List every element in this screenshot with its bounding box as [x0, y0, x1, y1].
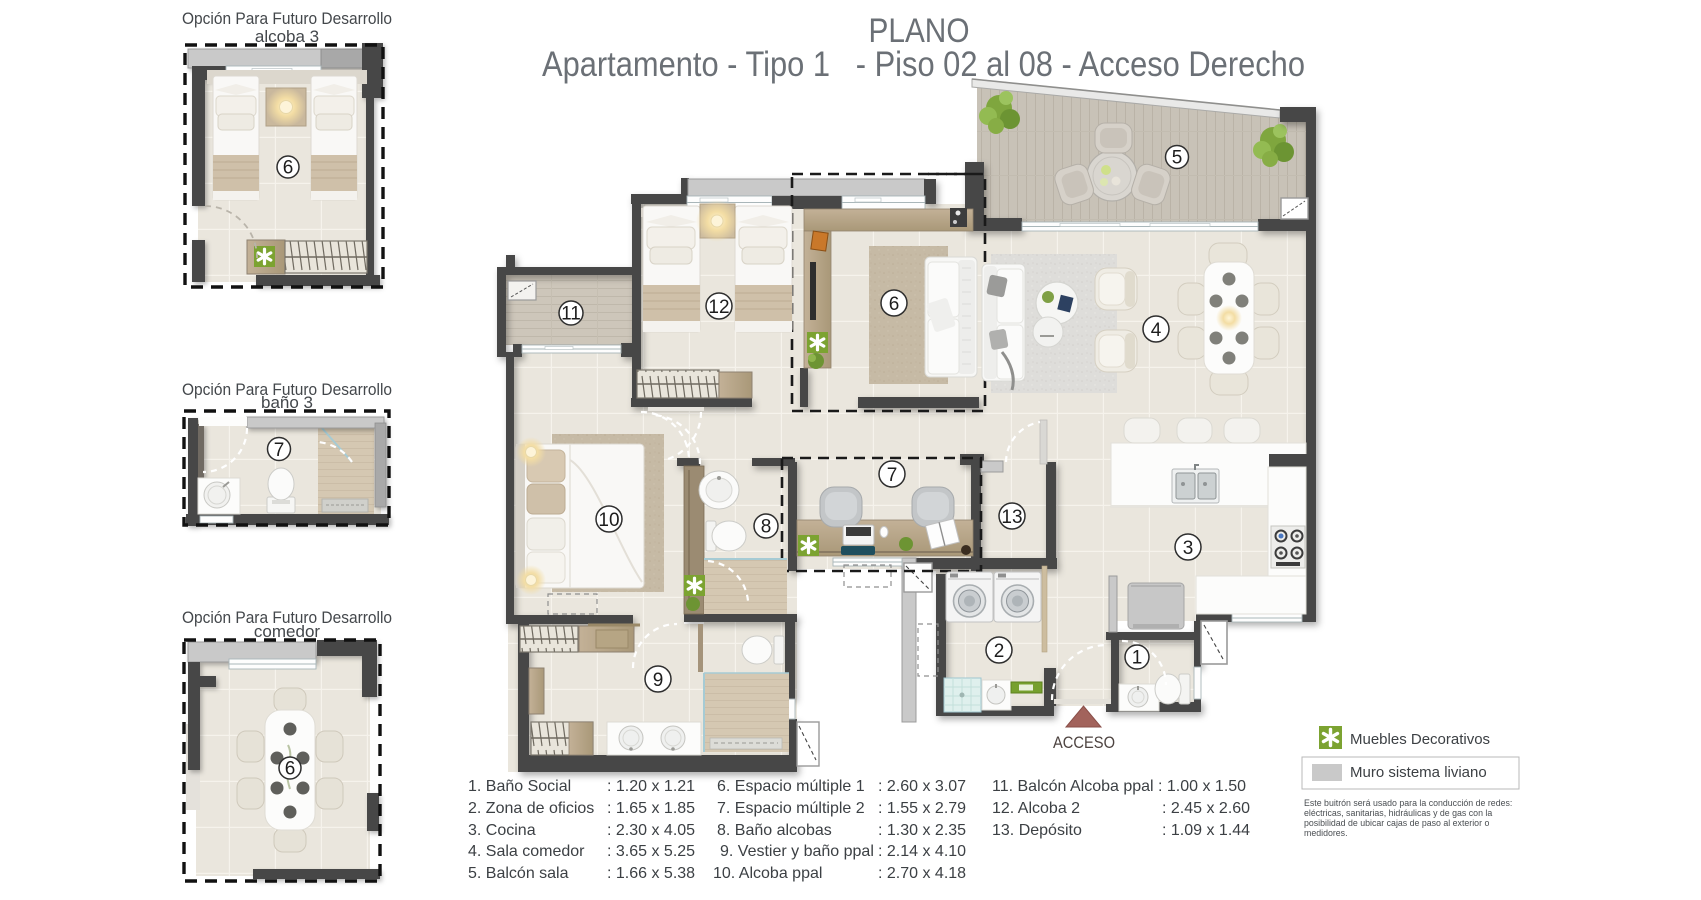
svg-text:: 1.00 x 1.50: : 1.00 x 1.50 [1158, 778, 1246, 795]
svg-text:8. Baño alcobas: 8. Baño alcobas [717, 822, 832, 839]
svg-text:1: 1 [1132, 648, 1143, 669]
svg-text:comedor: comedor [254, 622, 320, 641]
svg-text:: 1.30 x 2.35: : 1.30 x 2.35 [878, 822, 966, 839]
svg-text:9: 9 [653, 670, 664, 691]
svg-text:eléctricas, sanitarias, hidráu: eléctricas, sanitarias, hidráulicas y de… [1304, 808, 1492, 818]
svg-text:baño 3: baño 3 [261, 393, 313, 412]
svg-text:ACCESO: ACCESO [1053, 734, 1115, 752]
svg-text:9. Vestier y baño ppal: 9. Vestier y baño ppal [720, 843, 874, 860]
svg-text:1. Baño Social: 1. Baño Social [468, 778, 571, 795]
svg-text:: 2.30 x 4.05: : 2.30 x 4.05 [607, 822, 695, 839]
svg-text:3. Cocina: 3. Cocina [468, 822, 536, 839]
svg-text:: 1.09 x 1.44: : 1.09 x 1.44 [1162, 822, 1250, 839]
svg-text:: 2.14 x 4.10: : 2.14 x 4.10 [878, 843, 966, 860]
svg-text:posibilidad de ubicar cajas de: posibilidad de ubicar cajas de paso al e… [1304, 818, 1489, 828]
svg-text:12: 12 [708, 297, 729, 318]
svg-text:: 3.65 x 5.25: : 3.65 x 5.25 [607, 843, 695, 860]
svg-text:: 1.65 x 1.85: : 1.65 x 1.85 [607, 800, 695, 817]
svg-text:2: 2 [994, 641, 1005, 662]
svg-text:6. Espacio múltiple 1: 6. Espacio múltiple 1 [717, 778, 865, 795]
svg-text:8: 8 [761, 517, 772, 538]
svg-text:4: 4 [1151, 320, 1162, 341]
svg-text:13: 13 [1001, 507, 1022, 528]
svg-text:2. Zona de oficios: 2. Zona de oficios [468, 800, 594, 817]
svg-text:11. Balcón Alcoba ppal: 11. Balcón Alcoba ppal [992, 778, 1154, 795]
svg-text:: 2.45 x 2.60: : 2.45 x 2.60 [1162, 800, 1250, 817]
svg-text:: 1.20 x 1.21: : 1.20 x 1.21 [607, 778, 695, 795]
svg-text:Opción Para Futuro Desarrollo: Opción Para Futuro Desarrollo [182, 9, 392, 28]
svg-text:6: 6 [285, 759, 296, 780]
svg-text:Apartamento - Tipo 1 - Piso: Apartamento - Tipo 1 - Piso 02 al 08 - A… [542, 45, 1305, 84]
svg-text:5. Balcón sala: 5. Balcón sala [468, 865, 569, 882]
svg-text:7. Espacio múltiple 2: 7. Espacio múltiple 2 [717, 800, 865, 817]
svg-text:4. Sala comedor: 4. Sala comedor [468, 843, 585, 860]
svg-text:11: 11 [561, 304, 581, 325]
svg-text:alcoba 3: alcoba 3 [255, 27, 319, 46]
svg-text:12. Alcoba 2: 12. Alcoba 2 [992, 800, 1080, 817]
svg-text:6: 6 [283, 158, 294, 179]
svg-text:10. Alcoba ppal: 10. Alcoba ppal [713, 865, 822, 882]
svg-text:7: 7 [887, 465, 898, 486]
svg-text:3: 3 [1183, 538, 1194, 559]
svg-text:: 1.55 x 2.79: : 1.55 x 2.79 [878, 800, 966, 817]
svg-text:Este buitrón será usado para l: Este buitrón será usado para la conducci… [1304, 798, 1512, 808]
svg-text:medidores.: medidores. [1304, 828, 1348, 838]
svg-text:Muro sistema liviano: Muro sistema liviano [1350, 764, 1487, 781]
svg-text:7: 7 [274, 440, 285, 461]
svg-text:: 2.60 x 3.07: : 2.60 x 3.07 [878, 778, 966, 795]
svg-text:6: 6 [889, 294, 900, 315]
svg-text:5: 5 [1172, 148, 1183, 169]
svg-text:: 2.70 x 4.18: : 2.70 x 4.18 [878, 865, 966, 882]
svg-text:10: 10 [598, 510, 619, 531]
svg-text:Muebles Decorativos: Muebles Decorativos [1350, 731, 1490, 748]
svg-text:: 1.66 x 5.38: : 1.66 x 5.38 [607, 865, 695, 882]
svg-text:13. Depósito: 13. Depósito [992, 822, 1082, 839]
